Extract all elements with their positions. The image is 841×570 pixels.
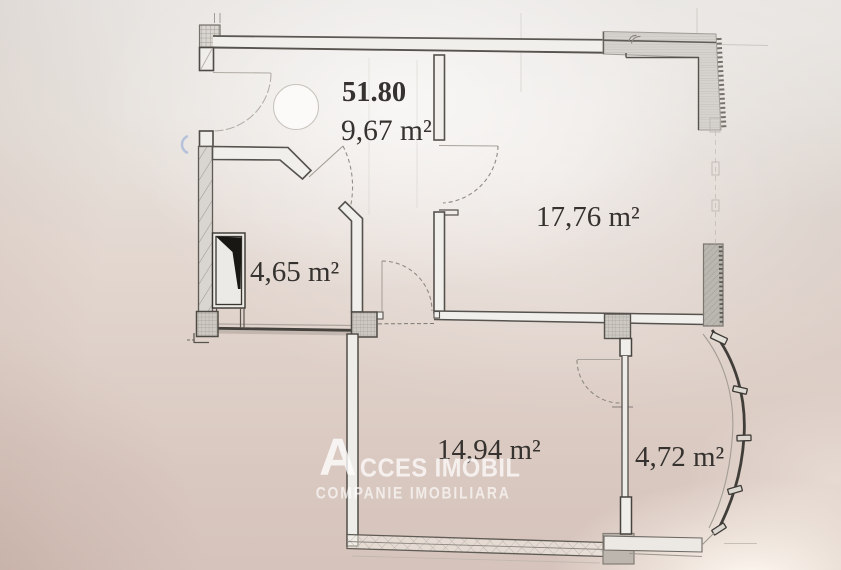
svg-text:51.80: 51.80 [342, 77, 406, 108]
svg-text:9,67 m²: 9,67 m² [341, 115, 432, 147]
svg-text:A: A [319, 429, 357, 487]
svg-text:17,76 m²: 17,76 m² [536, 201, 640, 233]
svg-text:4,65 m²: 4,65 m² [250, 256, 340, 288]
svg-text:4,72 m²: 4,72 m² [635, 441, 725, 473]
svg-text:CCES IMOBIL: CCES IMOBIL [360, 455, 521, 483]
svg-text:COMPANIE IMOBILIARA: COMPANIE IMOBILIARA [316, 484, 511, 503]
